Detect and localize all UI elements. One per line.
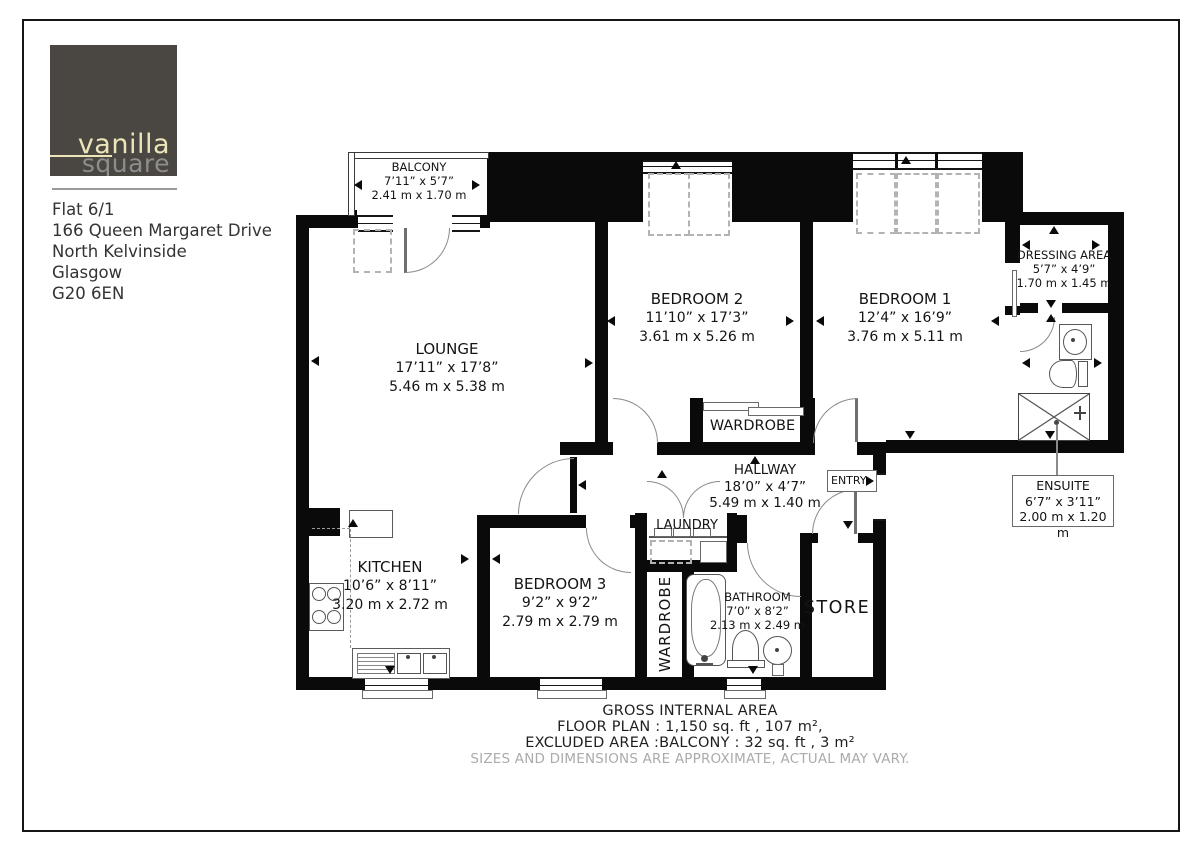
window-sill xyxy=(724,690,766,699)
room-label-balcony: BALCONY 7’11” x 5’7” 2.41 m x 1.70 m xyxy=(354,160,484,202)
wall-stub-kitchen xyxy=(309,508,340,536)
furniture-outline xyxy=(353,229,392,273)
dim-arrow-up xyxy=(750,456,760,464)
wall xyxy=(560,442,613,455)
dim-arrow-down xyxy=(1046,300,1056,308)
label-entry: ENTRY xyxy=(831,474,867,487)
wall xyxy=(657,442,815,455)
dim-arrow-left xyxy=(311,356,319,366)
wall xyxy=(1062,303,1108,313)
window xyxy=(452,215,480,232)
room-label-lounge: LOUNGE 17’11” x 17’8” 5.46 m x 5.38 m xyxy=(347,340,547,397)
tap-icon xyxy=(406,655,410,659)
furniture-outline-bed1 xyxy=(937,173,980,234)
room-label-dressing: DRESSING AREA 5’7” x 4’9” 1.70 m x 1.45 … xyxy=(1014,248,1114,290)
leader-line xyxy=(1056,425,1058,475)
wall xyxy=(1005,212,1124,225)
dim-arrow-right xyxy=(1092,240,1100,250)
disclaimer: SIZES AND DIMENSIONS ARE APPROXIMATE, AC… xyxy=(340,751,1040,767)
dim-arrow-up xyxy=(1049,226,1059,234)
dim-arrow-left xyxy=(578,480,586,490)
entry-arrow-icon xyxy=(866,476,874,486)
address-line: 166 Queen Margaret Drive xyxy=(52,220,272,241)
shower-head-icon xyxy=(1079,406,1081,420)
excluded-area: EXCLUDED AREA :BALCONY : 32 sq. ft , 3 m… xyxy=(340,735,1040,751)
vanilla-square-logo: vanilla square xyxy=(50,45,177,176)
wall xyxy=(690,398,703,442)
basin-pedestal xyxy=(772,664,784,676)
room-label-bedroom1: BEDROOM 1 12’4” x 16’9” 3.76 m x 5.11 m xyxy=(805,290,1005,347)
address-line: G20 6EN xyxy=(52,283,272,304)
dim-arrow-down xyxy=(748,666,758,674)
window-sill xyxy=(537,690,607,699)
wall xyxy=(1020,303,1038,313)
dim-arrow-up xyxy=(901,156,911,164)
dim-arrow-down xyxy=(1045,431,1055,439)
furniture-outline-laundry xyxy=(650,540,692,564)
dim-arrow-down xyxy=(905,431,915,439)
dim-arrow-left xyxy=(1022,240,1030,250)
label-wardrobe-bed2: WARDROBE xyxy=(703,418,802,434)
dim-arrow-up xyxy=(657,470,667,478)
dim-arrow-down xyxy=(843,521,853,529)
floorplan-page: vanilla square Flat 6/1 166 Queen Margar… xyxy=(0,0,1200,848)
address-line: North Kelvinside xyxy=(52,241,272,262)
dim-arrow-down xyxy=(665,444,675,452)
dim-arrow-left xyxy=(991,316,999,326)
logo-word-secondary: square xyxy=(82,149,170,176)
room-label-bedroom2: BEDROOM 2 11’10” x 17’3” 3.61 m x 5.26 m xyxy=(597,290,797,347)
dim-arrow-right xyxy=(786,316,794,326)
dim-arrow-right xyxy=(585,358,593,368)
ensuite-basin-drain xyxy=(1071,338,1075,342)
dim-arrow-left xyxy=(354,180,362,190)
window-mullion xyxy=(895,152,898,168)
window xyxy=(853,152,982,170)
toilet-icon xyxy=(732,630,759,662)
tap-icon xyxy=(432,655,436,659)
dim-arrow-up xyxy=(671,161,681,169)
sink-unit xyxy=(352,648,450,679)
wall xyxy=(886,440,1124,453)
appliance xyxy=(700,541,727,563)
ensuite-toilet-tank xyxy=(1078,361,1088,387)
ensuite-basin-unit xyxy=(1059,324,1092,360)
furniture-outline-bed1 xyxy=(856,173,896,234)
bath-tap-icon xyxy=(701,655,708,662)
header-divider xyxy=(52,188,177,190)
dim-arrow-left xyxy=(607,316,615,326)
label-store: STORE xyxy=(798,598,876,618)
dim-arrow-right xyxy=(1094,358,1102,368)
dim-arrow-left xyxy=(1022,358,1030,368)
address-line: Glasgow xyxy=(52,262,272,283)
property-address: Flat 6/1 166 Queen Margaret Drive North … xyxy=(52,199,272,304)
window-mullion xyxy=(935,152,938,168)
dim-arrow-down xyxy=(385,666,395,674)
wall xyxy=(1005,152,1020,263)
furniture-outline-bed1 xyxy=(896,173,937,234)
dim-arrow-right xyxy=(461,554,469,564)
dim-arrow-right xyxy=(472,180,480,190)
dim-arrow-left xyxy=(492,554,500,564)
area-summary: GROSS INTERNAL AREA FLOOR PLAN : 1,150 s… xyxy=(340,703,1040,767)
wall xyxy=(477,515,586,528)
furniture-outline-bed2 xyxy=(688,173,730,236)
ensuite-toilet-icon xyxy=(1049,360,1077,388)
wall xyxy=(737,515,747,543)
bath-tap-bar xyxy=(696,663,713,665)
label-entry-box: ENTRY xyxy=(827,470,877,492)
address-line: Flat 6/1 xyxy=(52,199,272,220)
dim-arrow-left xyxy=(297,552,305,562)
wall xyxy=(873,442,886,473)
window-sill xyxy=(362,690,433,699)
counter-dashed-line xyxy=(312,528,350,529)
dim-arrow-left xyxy=(816,316,824,326)
room-label-ensuite: ENSUITE 6’7” x 3’11” 2.00 m x 1.20 m xyxy=(1012,475,1114,527)
sliding-door-wardrobe xyxy=(748,407,804,416)
wall xyxy=(800,533,818,543)
basin-drain xyxy=(775,648,779,652)
label-laundry: LAUNDRY xyxy=(647,518,727,533)
furniture-outline-bed2 xyxy=(648,173,690,236)
room-label-kitchen: KITCHEN 10’6” x 8’11” 3.20 m x 2.72 m xyxy=(300,558,480,615)
floor-plan-area: FLOOR PLAN : 1,150 sq. ft , 107 m², xyxy=(340,719,1040,735)
toilet-base xyxy=(727,660,765,668)
window xyxy=(643,160,732,174)
ensuite-basin-icon xyxy=(1063,329,1087,355)
dim-arrow-up xyxy=(1046,314,1056,322)
wall xyxy=(858,533,873,543)
dim-arrow-up xyxy=(348,519,358,527)
gross-internal-area-title: GROSS INTERNAL AREA xyxy=(340,703,1040,719)
label-wardrobe-bed3: WARDROBE xyxy=(656,574,674,674)
room-label-bedroom3: BEDROOM 3 9’2” x 9’2” 2.79 m x 2.79 m xyxy=(465,575,655,632)
balcony-rail xyxy=(348,152,489,159)
wall xyxy=(296,215,309,690)
